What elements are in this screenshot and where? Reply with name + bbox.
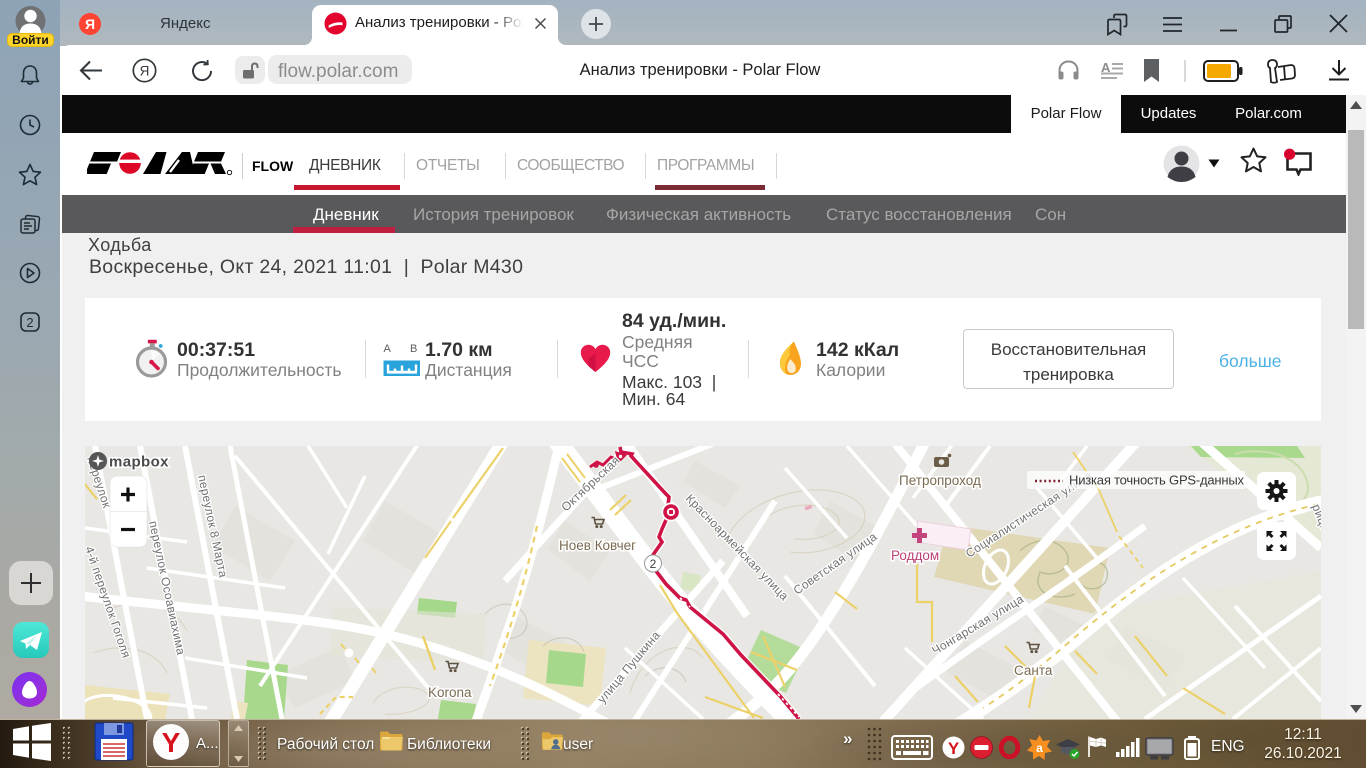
svg-text:В: В: [410, 343, 417, 355]
svg-text:2: 2: [26, 315, 33, 330]
svg-text:Роддом: Роддом: [891, 548, 939, 563]
svg-text:Я: Я: [85, 16, 95, 32]
svg-text:mapbox: mapbox: [109, 454, 169, 471]
svg-text:Низкая точность GPS-данных: Низкая точность GPS-данных: [1069, 473, 1245, 488]
svg-text:Ноев Ковчег: Ноев Ковчег: [559, 538, 636, 553]
svg-text:Korona: Korona: [428, 685, 472, 700]
svg-text:Y: Y: [162, 727, 181, 758]
svg-text:Санта: Санта: [1014, 663, 1053, 678]
svg-text:Я: Я: [140, 64, 150, 79]
svg-text:А: А: [384, 343, 392, 355]
svg-text:a: a: [1036, 741, 1043, 755]
svg-text:Петропроход: Петропроход: [899, 473, 981, 488]
svg-text:Y: Y: [948, 739, 960, 758]
svg-text:2: 2: [650, 557, 657, 571]
